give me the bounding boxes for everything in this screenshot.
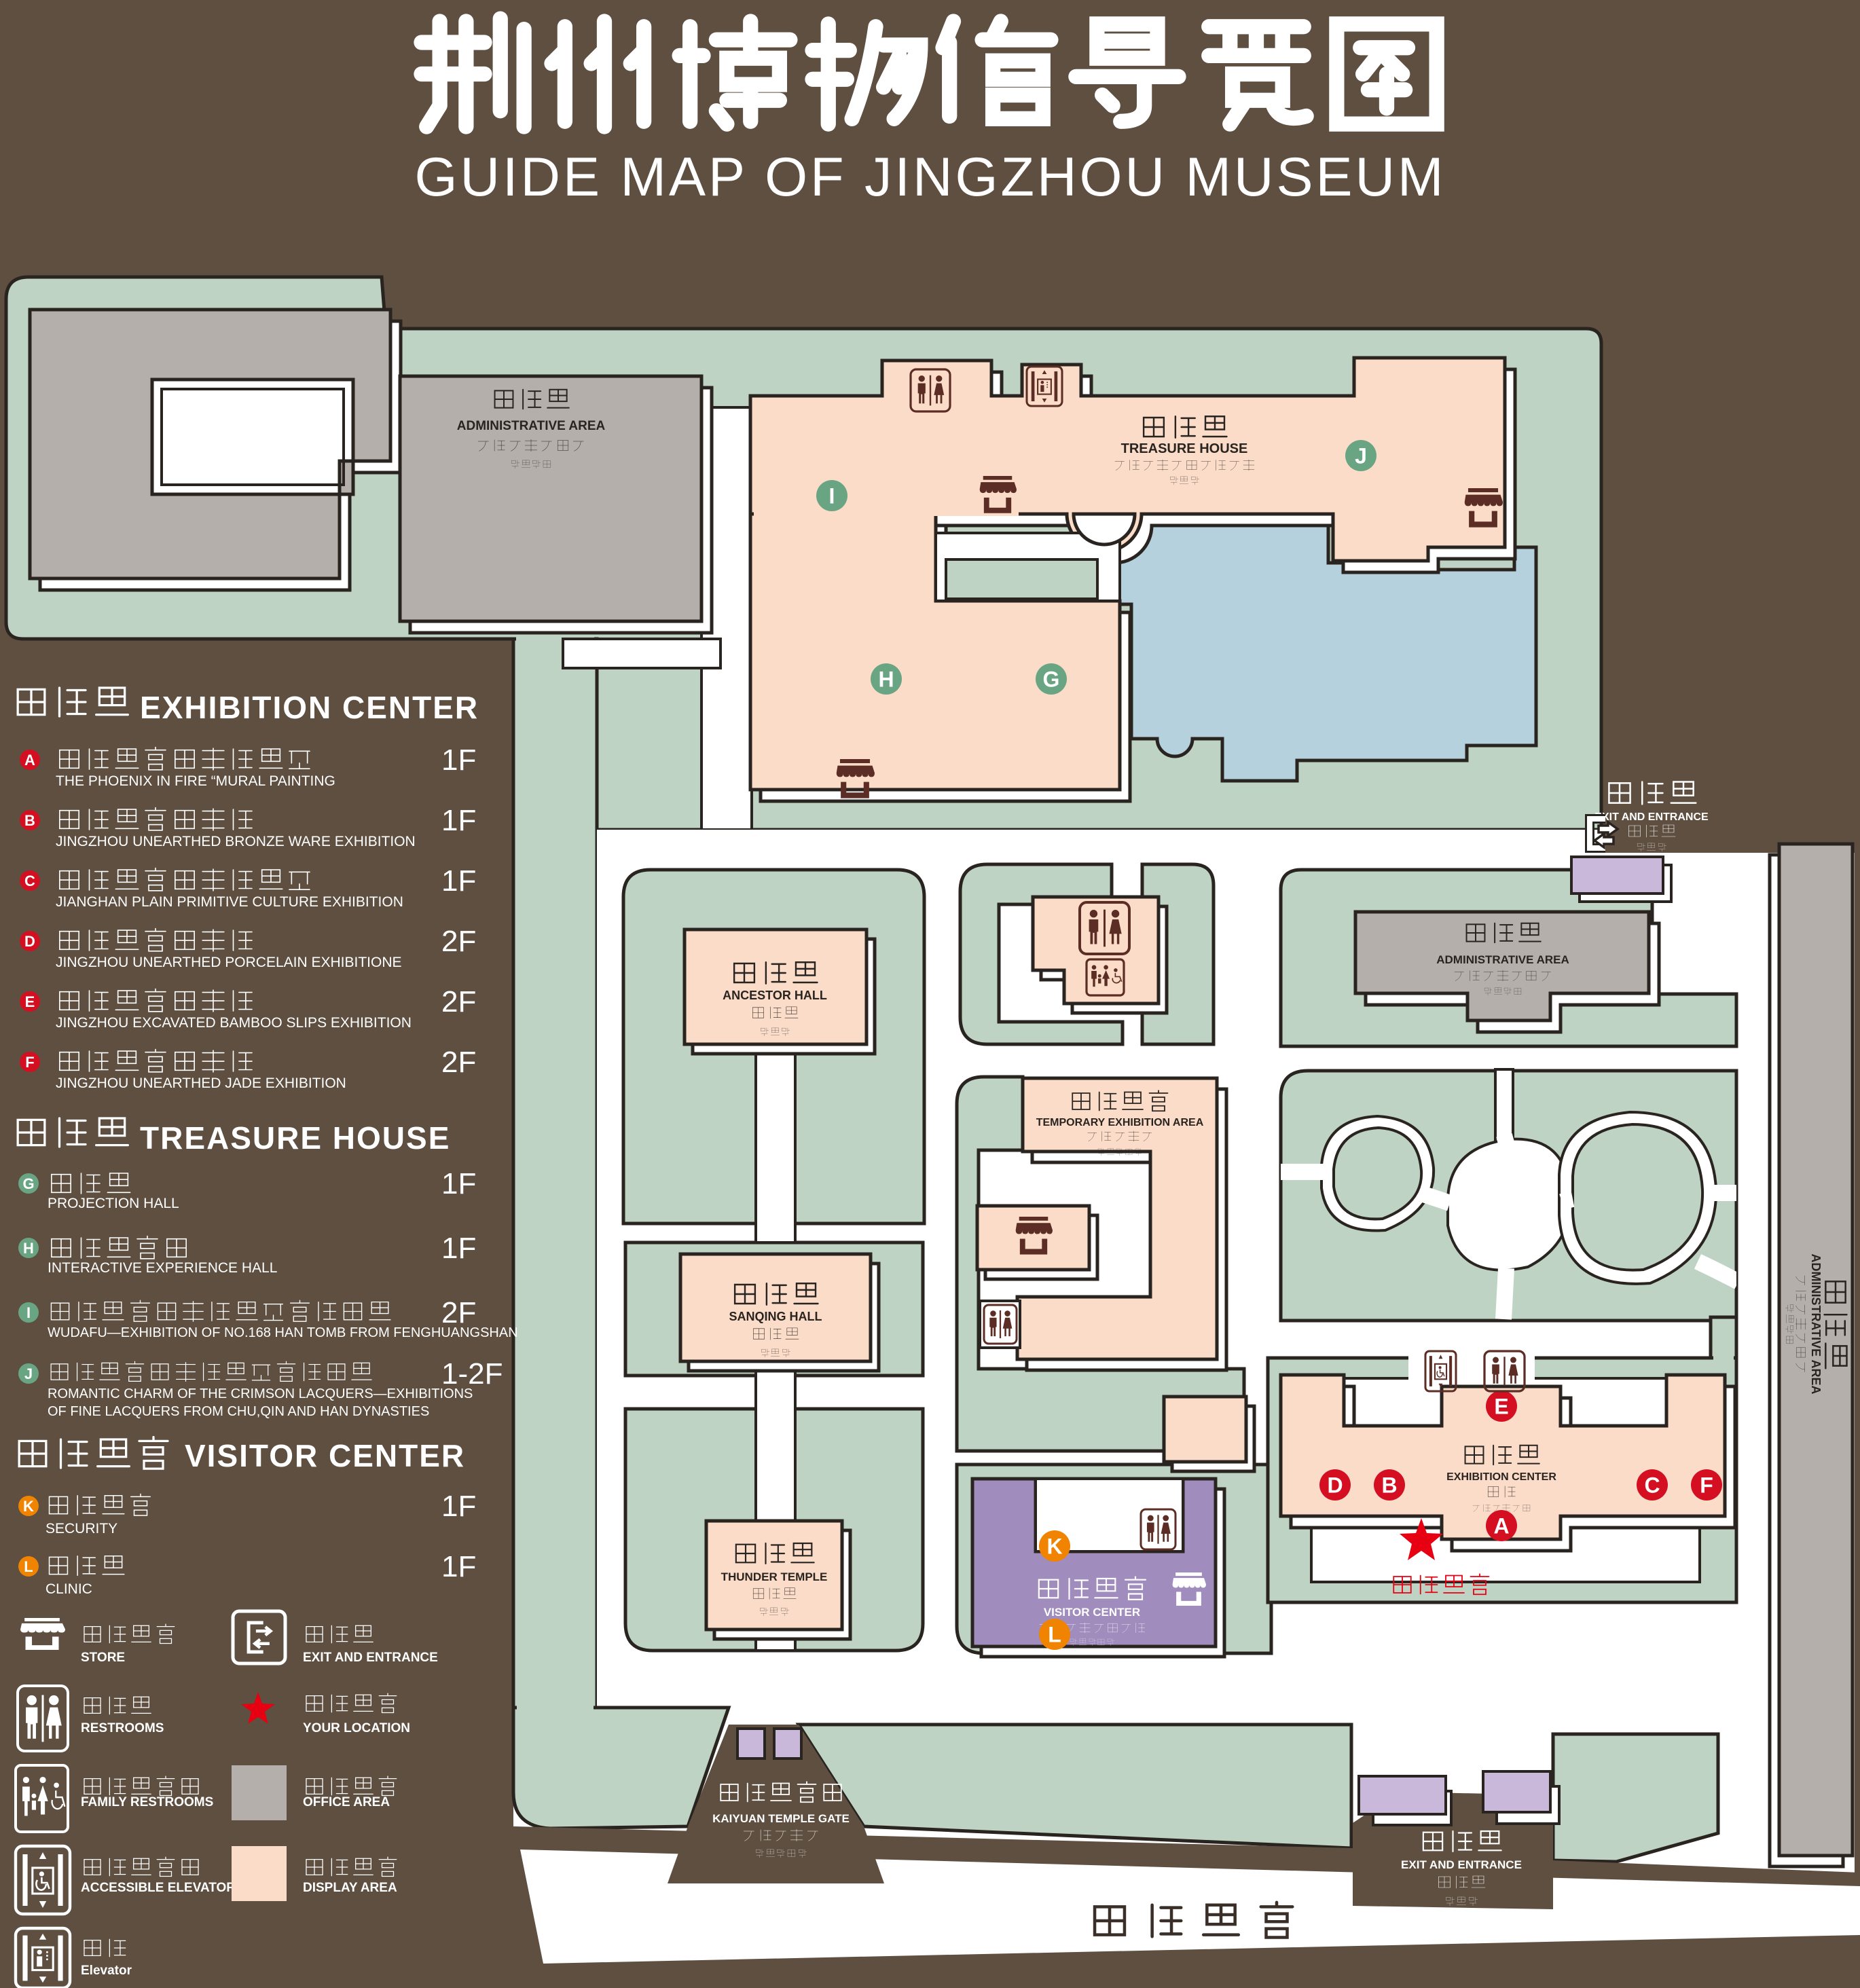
svg-text:RESTROOMS: RESTROOMS: [81, 1721, 164, 1735]
svg-text:TREASURE HOUSE: TREASURE HOUSE: [140, 1120, 450, 1156]
svg-text:GUIDE MAP OF JINGZHOU MUSEUM: GUIDE MAP OF JINGZHOU MUSEUM: [414, 147, 1446, 208]
svg-text:G: G: [22, 1175, 34, 1192]
svg-text:F: F: [1700, 1473, 1713, 1498]
svg-text:K: K: [23, 1498, 34, 1515]
svg-text:1F: 1F: [441, 743, 476, 777]
svg-text:Elevator: Elevator: [81, 1964, 132, 1978]
svg-text:2F: 2F: [441, 985, 476, 1018]
svg-text:ADMINISTRATIVE AREA: ADMINISTRATIVE AREA: [457, 419, 606, 433]
svg-text:G: G: [1043, 667, 1060, 692]
svg-text:TEMPORARY EXHIBITION AREA: TEMPORARY EXHIBITION AREA: [1036, 1117, 1204, 1128]
svg-text:J: J: [1355, 444, 1367, 468]
svg-text:JINGZHOU UNEARTHED BRONZE WARE: JINGZHOU UNEARTHED BRONZE WARE EXHIBITIO…: [56, 834, 416, 849]
svg-text:EXHIBITION CENTER: EXHIBITION CENTER: [140, 690, 479, 725]
svg-text:VISITOR CENTER: VISITOR CENTER: [185, 1438, 465, 1473]
svg-text:JINGZHOU UNEARTHED JADE EXHIBI: JINGZHOU UNEARTHED JADE EXHIBITION: [56, 1075, 346, 1091]
svg-text:E: E: [25, 993, 35, 1010]
svg-text:ROMANTIC CHARM OF THE CRIMSON: ROMANTIC CHARM OF THE CRIMSON LACQUERS—E…: [48, 1386, 473, 1401]
svg-text:THE PHOENIX IN FIRE “MURAL PAI: THE PHOENIX IN FIRE “MURAL PAINTING: [56, 773, 335, 789]
svg-text:OF FINE LACQUERS FROM CHU,QIN: OF FINE LACQUERS FROM CHU,QIN AND HAN DY…: [48, 1404, 429, 1419]
svg-text:EXIT AND ENTRANCE: EXIT AND ENTRANCE: [1401, 1858, 1522, 1871]
svg-text:SECURITY: SECURITY: [45, 1521, 117, 1536]
svg-text:EXIT AND ENTRANCE: EXIT AND ENTRANCE: [303, 1651, 438, 1665]
svg-text:SANQING HALL: SANQING HALL: [729, 1310, 822, 1323]
svg-text:DISPLAY AREA: DISPLAY AREA: [303, 1881, 397, 1895]
svg-text:YOUR LOCATION: YOUR LOCATION: [303, 1721, 410, 1735]
svg-text:D: D: [1327, 1473, 1343, 1498]
svg-text:L: L: [1048, 1623, 1061, 1647]
svg-text:1F: 1F: [441, 1167, 476, 1200]
svg-text:K: K: [1046, 1534, 1062, 1559]
svg-text:H: H: [23, 1240, 34, 1257]
svg-text:F: F: [25, 1054, 34, 1071]
svg-text:J: J: [24, 1365, 33, 1382]
svg-text:CLINIC: CLINIC: [45, 1581, 92, 1597]
svg-text:STORE: STORE: [81, 1651, 125, 1665]
svg-text:JINGZHOU UNEARTHED PORCELAIN E: JINGZHOU UNEARTHED PORCELAIN EXHIBITIONE: [56, 955, 402, 970]
svg-text:ANCESTOR HALL: ANCESTOR HALL: [723, 989, 827, 1002]
svg-text:ADMINISTRATIVE AREA: ADMINISTRATIVE AREA: [1436, 953, 1569, 966]
svg-text:JINGZHOU EXCAVATED BAMBOO SLIP: JINGZHOU EXCAVATED BAMBOO SLIPS EXHIBITI…: [56, 1015, 412, 1031]
svg-text:C: C: [24, 872, 35, 889]
svg-text:VISITOR CENTER: VISITOR CENTER: [1044, 1606, 1140, 1619]
svg-text:ACCESSIBLE ELEVATOR: ACCESSIBLE ELEVATOR: [81, 1881, 236, 1895]
svg-text:1-2F: 1-2F: [441, 1357, 503, 1391]
svg-text:EXHIBITION CENTER: EXHIBITION CENTER: [1446, 1471, 1556, 1483]
svg-text:THUNDER TEMPLE: THUNDER TEMPLE: [721, 1570, 828, 1583]
svg-text:A: A: [24, 752, 35, 769]
svg-text:PROJECTION HALL: PROJECTION HALL: [48, 1196, 179, 1211]
svg-text:TREASURE HOUSE: TREASURE HOUSE: [1121, 441, 1248, 456]
svg-text:KAIYUAN TEMPLE GATE: KAIYUAN TEMPLE GATE: [712, 1812, 850, 1825]
svg-text:FAMILY RESTROOMS: FAMILY RESTROOMS: [81, 1795, 213, 1809]
svg-text:A: A: [1493, 1514, 1509, 1539]
svg-text:INTERACTIVE EXPERIENCE HALL: INTERACTIVE EXPERIENCE HALL: [48, 1260, 277, 1276]
svg-text:2F: 2F: [441, 1046, 476, 1079]
svg-text:E: E: [1494, 1395, 1508, 1419]
svg-text:1F: 1F: [441, 804, 476, 837]
svg-text:EXIT AND ENTRANCE: EXIT AND ENTRANCE: [1594, 811, 1709, 823]
svg-text:B: B: [24, 812, 35, 829]
svg-text:C: C: [1644, 1473, 1660, 1498]
svg-text:OFFICE AREA: OFFICE AREA: [303, 1795, 390, 1809]
svg-text:2F: 2F: [441, 925, 476, 958]
svg-text:JIANGHAN PLAIN PRIMITIVE CULTU: JIANGHAN PLAIN PRIMITIVE CULTURE EXHIBIT…: [56, 894, 403, 910]
svg-text:ADMINISTRATIVE AREA: ADMINISTRATIVE AREA: [1809, 1254, 1823, 1395]
svg-text:2F: 2F: [441, 1296, 476, 1329]
svg-text:D: D: [24, 933, 35, 950]
svg-text:1F: 1F: [441, 1232, 476, 1265]
svg-text:1F: 1F: [441, 1550, 476, 1583]
svg-text:I: I: [829, 484, 835, 509]
svg-text:1F: 1F: [441, 1490, 476, 1523]
svg-text:L: L: [24, 1558, 33, 1575]
svg-text:H: H: [878, 667, 894, 692]
svg-text:B: B: [1381, 1473, 1397, 1498]
svg-text:I: I: [26, 1304, 31, 1321]
svg-text:1F: 1F: [441, 864, 476, 898]
